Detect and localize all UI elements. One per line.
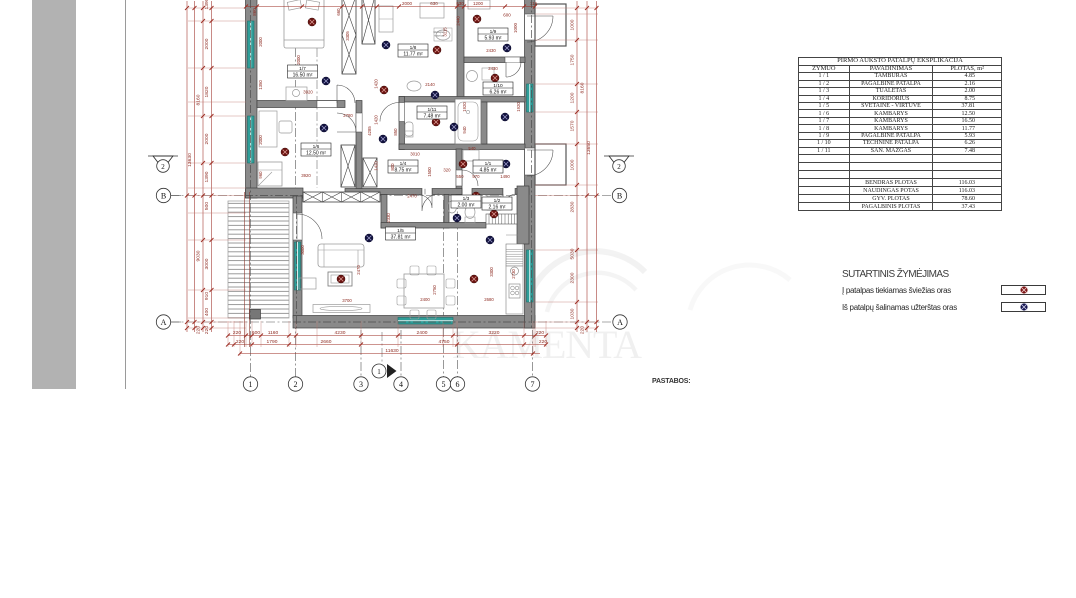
svg-text:5.93 m²: 5.93 m² [485, 36, 502, 42]
svg-text:2000: 2000 [258, 135, 263, 145]
svg-text:2400: 2400 [420, 297, 430, 302]
svg-text:220: 220 [236, 339, 244, 345]
svg-text:1200: 1200 [473, 1, 484, 6]
svg-text:2.16 m²: 2.16 m² [489, 205, 506, 211]
svg-text:1160: 1160 [268, 330, 279, 336]
svg-text:960: 960 [258, 171, 263, 179]
svg-text:12.50 m²: 12.50 m² [306, 151, 326, 157]
svg-text:2000: 2000 [204, 38, 210, 49]
svg-text:4.85 m²: 4.85 m² [480, 168, 497, 174]
svg-text:2140: 2140 [425, 82, 435, 87]
svg-text:2000: 2000 [204, 133, 210, 144]
svg-text:8.75 m²: 8.75 m² [395, 168, 412, 174]
svg-text:1820: 1820 [204, 86, 210, 97]
svg-text:220: 220 [539, 339, 547, 345]
svg-text:A: A [617, 318, 623, 327]
svg-text:2830: 2830 [570, 201, 576, 212]
svg-text:1/2: 1/2 [494, 198, 501, 204]
svg-text:9030: 9030 [196, 250, 202, 261]
svg-text:1/4: 1/4 [400, 161, 407, 167]
svg-text:11.77 m²: 11.77 m² [403, 52, 423, 58]
svg-text:B: B [161, 191, 166, 200]
svg-text:600: 600 [503, 13, 511, 18]
svg-text:3700: 3700 [342, 298, 352, 303]
svg-text:6.26 m²: 6.26 m² [490, 90, 507, 96]
svg-text:550: 550 [456, 174, 464, 179]
svg-text:115: 115 [530, 1, 538, 6]
svg-text:2330: 2330 [386, 213, 391, 223]
svg-text:1790: 1790 [267, 339, 278, 345]
svg-text:2.00 m²: 2.00 m² [458, 203, 475, 209]
svg-text:3: 3 [359, 380, 363, 389]
svg-text:2730: 2730 [511, 269, 516, 279]
svg-text:1390: 1390 [204, 0, 210, 9]
svg-text:8160: 8160 [580, 82, 586, 93]
svg-text:220: 220 [204, 326, 210, 334]
svg-text:1/10: 1/10 [493, 83, 503, 89]
svg-text:220: 220 [196, 326, 202, 334]
svg-text:3305: 3305 [345, 31, 350, 41]
svg-text:2430: 2430 [488, 66, 498, 71]
svg-text:1000: 1000 [513, 22, 518, 33]
svg-text:1420: 1420 [374, 115, 379, 125]
svg-text:220: 220 [536, 330, 544, 336]
svg-text:3000: 3000 [300, 245, 305, 255]
svg-text:940: 940 [462, 126, 467, 134]
svg-text:B: B [617, 191, 622, 200]
svg-text:4285: 4285 [367, 126, 372, 136]
svg-text:1/1: 1/1 [485, 161, 492, 167]
svg-text:2300: 2300 [570, 272, 576, 283]
svg-text:2000: 2000 [296, 55, 301, 65]
svg-text:2750: 2750 [432, 285, 437, 295]
svg-text:5: 5 [442, 380, 446, 389]
svg-text:16.50 m²: 16.50 m² [293, 73, 313, 79]
svg-text:7: 7 [531, 380, 535, 389]
svg-text:1: 1 [249, 380, 253, 389]
svg-text:1920: 1920 [516, 102, 521, 112]
svg-text:860: 860 [252, 8, 257, 16]
svg-text:11630: 11630 [385, 348, 399, 354]
svg-text:1750: 1750 [570, 54, 576, 65]
svg-text:37.81 m²: 37.81 m² [391, 235, 411, 241]
svg-text:3920: 3920 [301, 173, 311, 178]
svg-text:220: 220 [233, 330, 241, 336]
svg-text:1490: 1490 [500, 174, 510, 179]
svg-text:4230: 4230 [335, 330, 346, 336]
svg-text:8160: 8160 [196, 94, 202, 105]
svg-text:1570: 1570 [570, 120, 576, 131]
svg-text:800: 800 [390, 163, 395, 171]
svg-text:3920: 3920 [303, 90, 313, 95]
svg-text:320: 320 [443, 168, 451, 173]
svg-text:2: 2 [617, 163, 621, 171]
svg-text:2: 2 [161, 163, 165, 171]
svg-text:3300: 3300 [489, 267, 494, 277]
svg-text:660: 660 [336, 8, 341, 16]
svg-text:1420: 1420 [374, 79, 379, 89]
svg-text:2680: 2680 [484, 297, 494, 302]
svg-text:1/6: 1/6 [313, 144, 320, 150]
svg-text:4: 4 [399, 380, 403, 389]
svg-text:1/11: 1/11 [428, 107, 437, 113]
svg-text:A: A [161, 318, 167, 327]
svg-text:630: 630 [430, 1, 438, 6]
svg-text:2400: 2400 [417, 330, 428, 336]
svg-text:1390: 1390 [204, 171, 210, 182]
svg-text:1200: 1200 [570, 92, 576, 103]
svg-text:5030: 5030 [570, 248, 576, 259]
svg-text:13630: 13630 [187, 153, 193, 167]
svg-text:500: 500 [204, 202, 210, 210]
svg-text:1000: 1000 [570, 159, 576, 170]
svg-text:2430: 2430 [486, 48, 496, 53]
svg-text:3115: 3115 [443, 27, 448, 37]
svg-text:2660: 2660 [321, 339, 332, 345]
svg-text:1350: 1350 [258, 80, 263, 90]
svg-text:1420: 1420 [374, 161, 379, 171]
svg-text:13650: 13650 [586, 141, 592, 155]
svg-text:400: 400 [204, 308, 210, 316]
svg-text:3000: 3000 [204, 258, 210, 269]
svg-text:2000: 2000 [402, 1, 413, 6]
svg-text:630: 630 [456, 1, 464, 6]
svg-text:2780: 2780 [343, 113, 353, 118]
svg-text:6: 6 [456, 380, 460, 389]
svg-text:2470: 2470 [407, 194, 417, 199]
svg-text:600: 600 [252, 330, 260, 336]
svg-text:850: 850 [393, 128, 398, 136]
svg-text:1/7: 1/7 [299, 66, 306, 72]
svg-text:3010: 3010 [410, 152, 420, 157]
svg-text:2440: 2440 [456, 16, 461, 26]
svg-text:1500: 1500 [427, 167, 432, 177]
svg-text:1/9: 1/9 [490, 29, 497, 35]
svg-text:1920: 1920 [462, 102, 467, 112]
svg-text:2000: 2000 [258, 37, 263, 47]
svg-text:1/5: 1/5 [397, 228, 404, 234]
svg-text:1030: 1030 [570, 308, 576, 319]
svg-text:1: 1 [377, 368, 381, 376]
svg-text:540: 540 [468, 146, 476, 151]
svg-text:570: 570 [472, 174, 480, 179]
svg-text:2: 2 [294, 380, 298, 389]
svg-text:220: 220 [580, 326, 586, 334]
svg-text:7.48 m²: 7.48 m² [424, 114, 441, 120]
svg-text:4750: 4750 [439, 339, 450, 345]
svg-text:1/3: 1/3 [463, 196, 470, 202]
svg-text:910: 910 [204, 292, 210, 300]
svg-text:2470: 2470 [356, 265, 361, 275]
svg-text:1000: 1000 [570, 19, 576, 30]
svg-text:1/8: 1/8 [410, 45, 417, 51]
svg-text:3220: 3220 [489, 330, 500, 336]
